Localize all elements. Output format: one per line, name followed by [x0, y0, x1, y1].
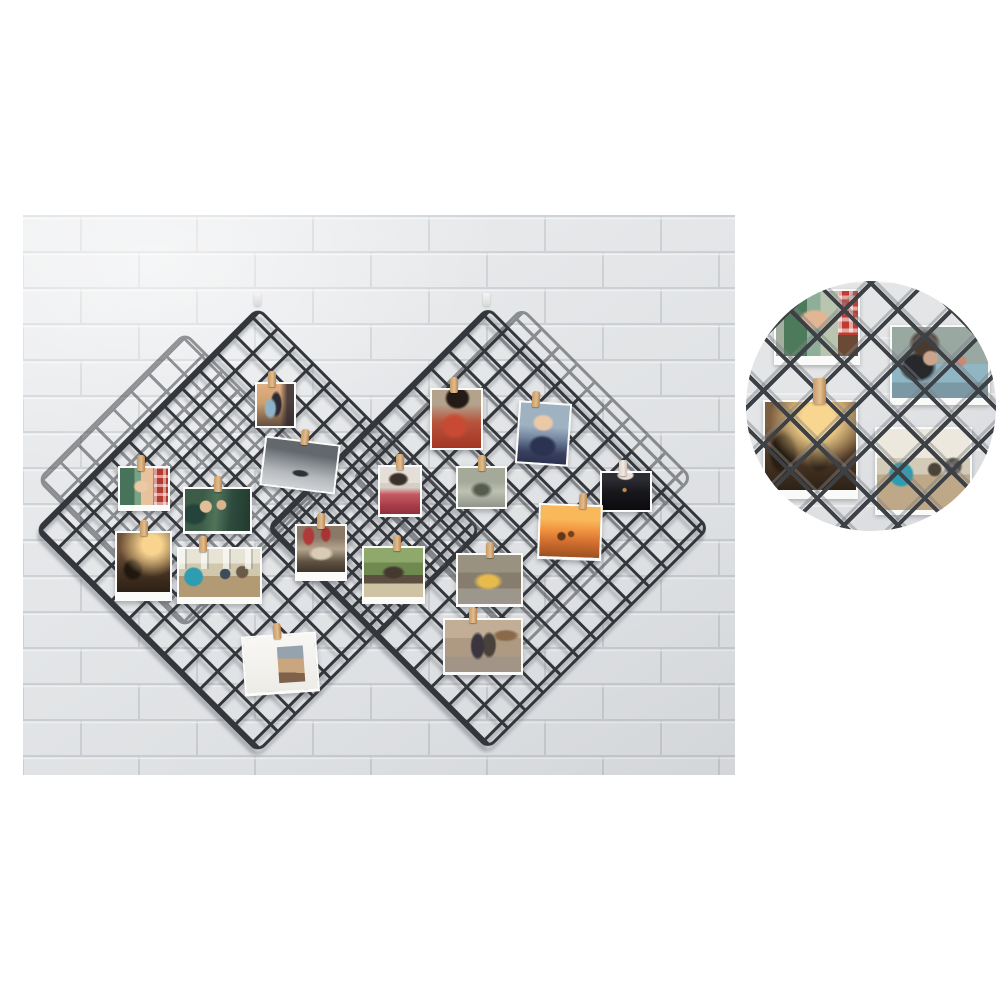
photo-dark-night-photo: [600, 471, 652, 512]
clothespin: [140, 520, 148, 536]
photo-yellow-tram: [456, 553, 523, 607]
photo-couple-lying: [183, 487, 252, 534]
photo-group-on-floor: [177, 547, 262, 604]
clothespin: [199, 536, 207, 552]
clothespin: [531, 391, 540, 408]
photo-white-postcard: [241, 631, 320, 696]
clothespin: [214, 476, 222, 492]
photo-red-ceremony: [295, 524, 347, 581]
clothespin: [317, 513, 325, 529]
zoom-detail-circle: [746, 281, 996, 531]
photo-party-warm-light: [115, 531, 172, 601]
clothespin: [619, 460, 627, 476]
clothespin: [272, 623, 281, 640]
hanging-hook: [254, 293, 261, 306]
clothespin: [450, 377, 458, 393]
photo-grey-seascape: [259, 436, 341, 495]
inset-clothespin: [813, 378, 826, 404]
product-photo: [0, 0, 1001, 1001]
photo-sunset-beach: [537, 503, 603, 561]
photo-park-bench-couple: [362, 546, 425, 604]
clothespin: [469, 607, 477, 623]
inset-mesh-overlay: [746, 281, 996, 531]
clothespin: [268, 371, 276, 387]
clothespin: [478, 455, 486, 471]
photo-holding-hands-plaid: [118, 466, 170, 511]
photo-sunset-couple: [255, 382, 296, 428]
photo-woman-in-red: [430, 388, 483, 450]
photo-pink-sweater-woman: [378, 465, 422, 517]
hanging-hook: [483, 293, 490, 306]
photo-street-couple-walking: [443, 618, 523, 675]
photo-man-glasses: [515, 400, 572, 467]
clothespin: [137, 455, 145, 471]
clothespin: [486, 542, 494, 558]
clothespin: [396, 454, 404, 470]
photo-foggy-forest: [456, 466, 507, 509]
clothespin: [579, 493, 588, 509]
clothespin: [393, 535, 401, 551]
